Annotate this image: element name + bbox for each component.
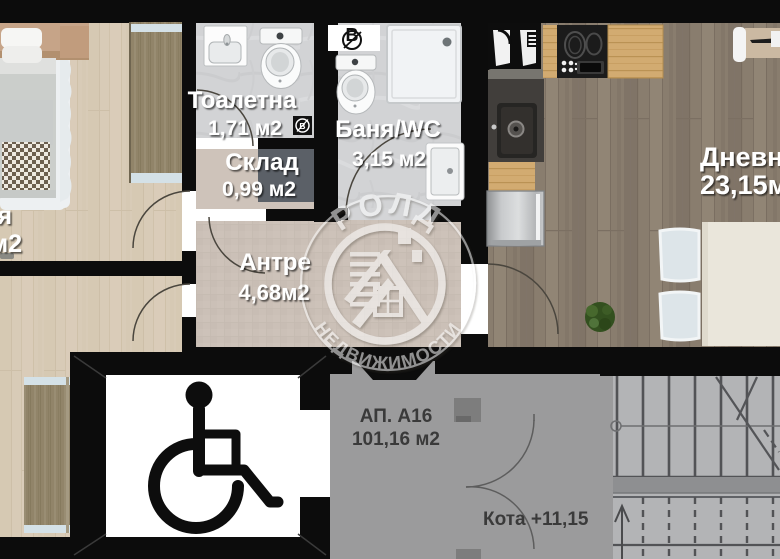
svg-text:Дневна: Дневна bbox=[700, 142, 780, 172]
svg-text:Склад: Склад bbox=[225, 149, 298, 176]
svg-text:3,15 м2: 3,15 м2 bbox=[352, 148, 426, 171]
svg-text:Тоалетна: Тоалетна bbox=[188, 87, 297, 114]
svg-text:11,42 м2: 11,42 м2 bbox=[0, 230, 22, 258]
svg-text:1,71 м2: 1,71 м2 bbox=[208, 117, 282, 140]
svg-text:23,15м2: 23,15м2 bbox=[700, 170, 780, 200]
svg-text:Кота +11,15: Кота +11,15 bbox=[483, 509, 589, 530]
svg-text:Антре: Антре bbox=[239, 249, 311, 276]
svg-text:Баня/WC: Баня/WC bbox=[335, 116, 441, 143]
svg-text:101,16 м2: 101,16 м2 bbox=[352, 429, 440, 450]
svg-text:АП. А16: АП. А16 bbox=[360, 406, 433, 427]
svg-text:4,68м2: 4,68м2 bbox=[238, 280, 309, 305]
svg-text:Спалня: Спалня bbox=[0, 202, 12, 230]
svg-text:0,99 м2: 0,99 м2 bbox=[222, 178, 296, 201]
